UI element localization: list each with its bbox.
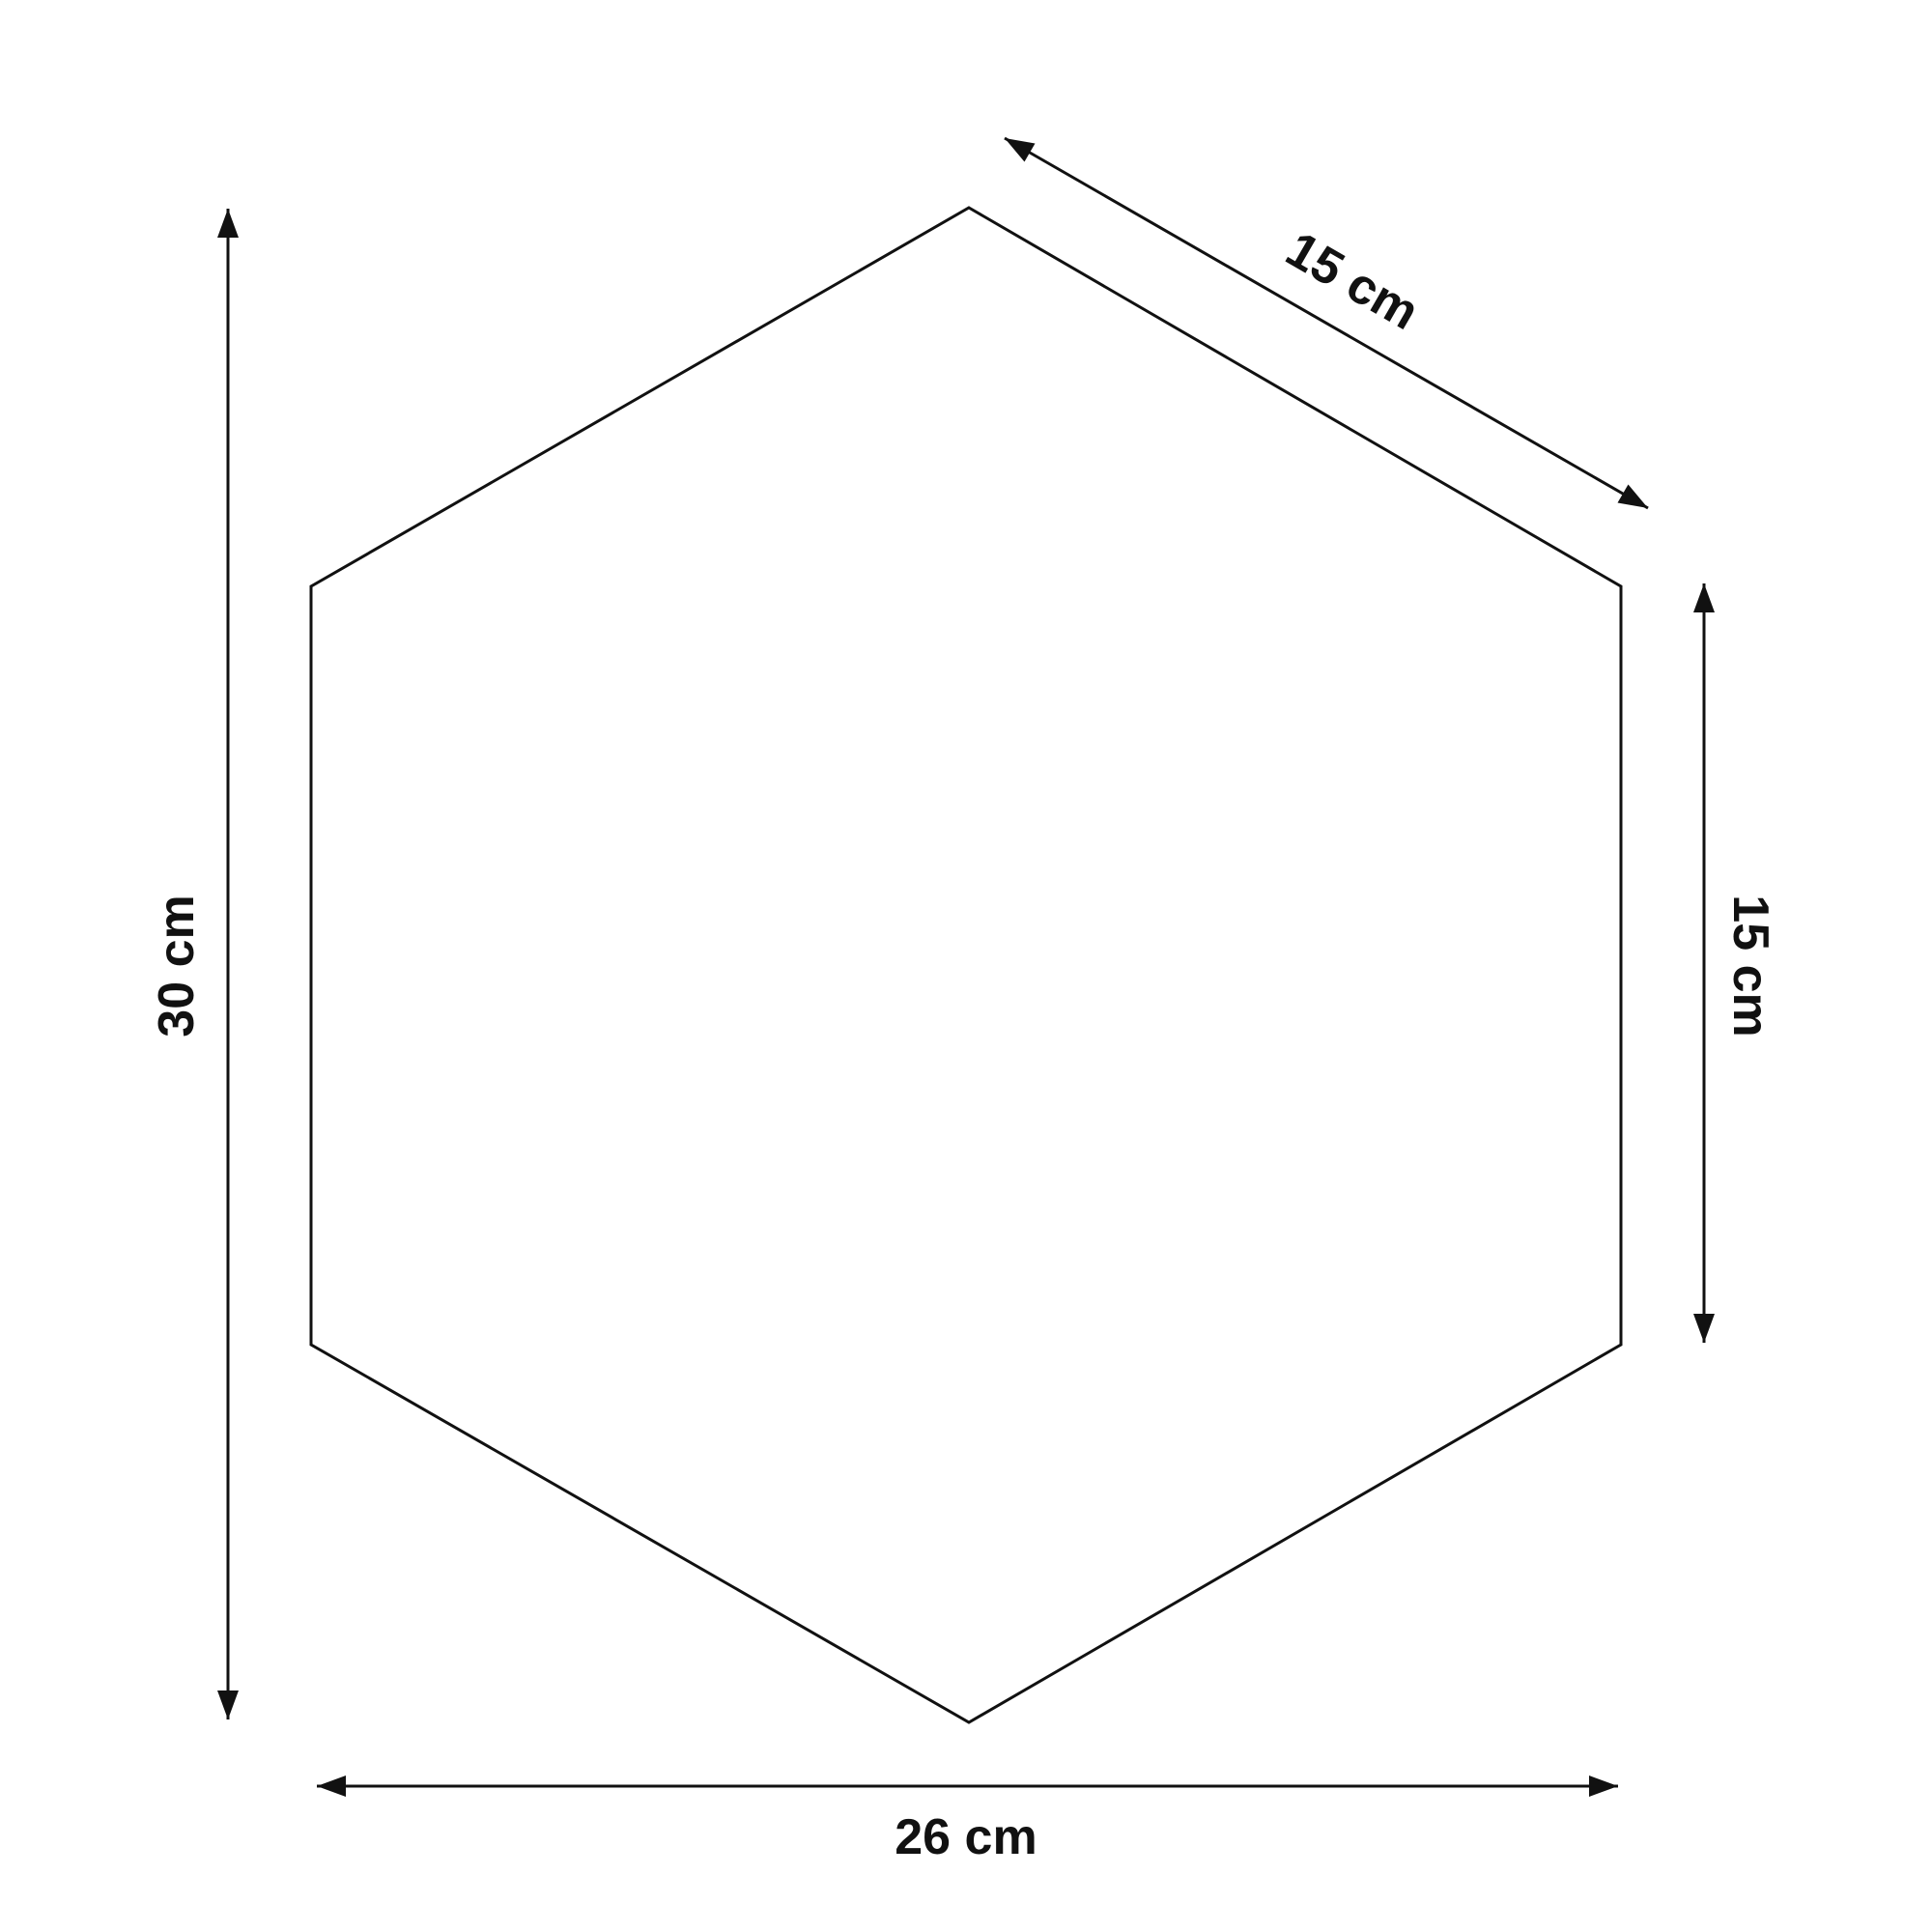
- dimension-height: 30 cm: [149, 209, 239, 1719]
- arrow-up-icon: [1693, 583, 1715, 612]
- diagram-canvas: 30 cm 15 cm 15 cm 26 cm: [0, 0, 1932, 1932]
- slant-dimension-label: 15 cm: [1277, 221, 1429, 341]
- height-dimension-label: 30 cm: [149, 895, 205, 1037]
- dimension-diagram: 30 cm 15 cm 15 cm 26 cm: [0, 0, 1932, 1932]
- dimension-right-side: 15 cm: [1693, 583, 1778, 1343]
- arrow-up-icon: [217, 209, 239, 238]
- arrow-down-icon: [1693, 1314, 1715, 1343]
- side-dimension-label: 15 cm: [1722, 895, 1778, 1037]
- slant-dimension-line: [1005, 138, 1648, 508]
- dimension-width: 26 cm: [317, 1776, 1618, 1865]
- width-dimension-label: 26 cm: [895, 1809, 1037, 1865]
- arrow-right-icon: [1589, 1776, 1618, 1797]
- arrow-left-icon: [317, 1776, 346, 1797]
- arrow-up-left-icon: [1005, 138, 1036, 162]
- arrow-down-right-icon: [1618, 485, 1649, 509]
- dimension-slant-edge: 15 cm: [1005, 138, 1648, 508]
- arrow-down-icon: [217, 1690, 239, 1719]
- hexagon-outline: [311, 208, 1621, 1722]
